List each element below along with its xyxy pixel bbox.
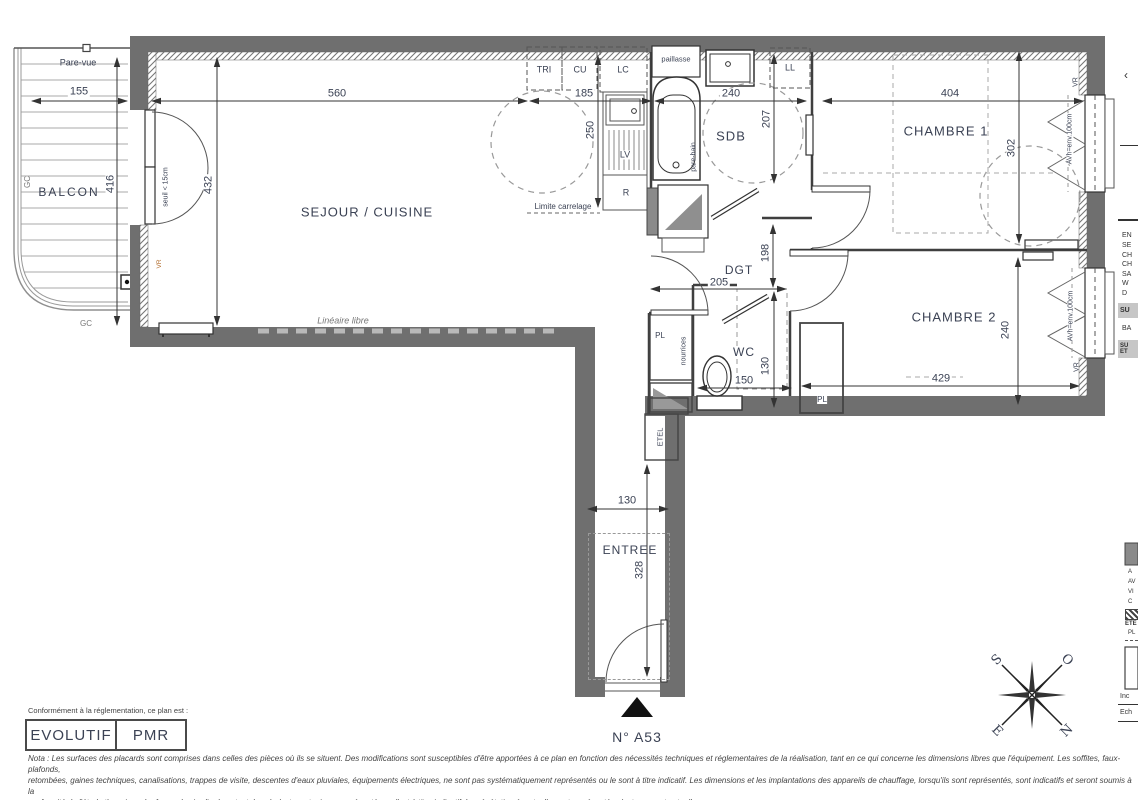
dim-dgt-width: 205 (708, 278, 730, 289)
compliance-badges: EVOLUTIF PMR (25, 719, 187, 751)
legend-key-row-3: VI (1128, 589, 1134, 595)
balcony-french-doors (145, 110, 208, 224)
room-label-balcon: BALCON (38, 186, 99, 198)
lineaire-libre-label: Linéaire libre (317, 317, 369, 326)
dim-ch1-width: 404 (939, 89, 961, 100)
nota-line-1: Nota : Les surfaces des placards sont co… (28, 753, 1133, 775)
legend-row-sejour: SE (1122, 242, 1131, 249)
room-label-chambre2: CHAMBRE 2 (912, 311, 997, 324)
pl-left-label: PL (655, 332, 665, 340)
legend-band2-line2: ET (1120, 349, 1138, 355)
avh-ch2-label: AVh=env.100cm (1068, 291, 1075, 342)
avh-ch1-label: AVh=env.100cm (1067, 114, 1074, 165)
unit-number: N° A53 (612, 730, 662, 744)
legend-row-sdb: SA (1122, 271, 1131, 278)
dim-sejour-height: 432 (204, 174, 215, 196)
badge-evolutif: EVOLUTIF (25, 719, 117, 751)
legend-dashed-sample (1125, 640, 1138, 641)
legend-surface-etel-band: SU ET (1118, 340, 1138, 358)
dim-sejour-width: 560 (326, 89, 348, 100)
limite-carrelage-label: Limite carrelage (533, 203, 594, 211)
vr-ch1-label: VR (1073, 77, 1080, 87)
dim-entree-width: 130 (616, 496, 638, 507)
legend-row-balcon: BA (1122, 325, 1131, 332)
pmr-circles (491, 83, 1080, 246)
seuil-label: seuil < 15cm (163, 167, 170, 207)
compliance-intro: Conformément à la réglementation, ce pla… (28, 706, 188, 715)
nota-line-2: retombées, gaines techniques, canalisati… (28, 775, 1133, 797)
pare-vue-label: Pare-vue (60, 59, 97, 68)
legend-row-entree: EN (1122, 232, 1132, 239)
legend-row-chambre2: CH (1122, 261, 1132, 268)
window-chambre2 (1048, 268, 1114, 358)
legend-echelle: Ech (1120, 709, 1132, 716)
legend-hatch-swatch (1125, 609, 1138, 620)
dim-ch2-width: 429 (930, 374, 952, 385)
legend-row-wc: W (1122, 280, 1129, 287)
dim-wc-width: 150 (733, 376, 755, 387)
window-chambre1 (1048, 95, 1114, 192)
dim-dgt-height: 198 (761, 242, 772, 264)
floor-plan-page: Pare-vue 155 BALCON GC 416 seuil < 15cm … (0, 0, 1138, 800)
sliding-door-wc (723, 296, 768, 322)
dim-balcon-width: 155 (68, 87, 90, 98)
dimension-lines (32, 52, 1083, 676)
dim-cuisine-height: 250 (586, 119, 597, 141)
pl-right-label: PL (817, 396, 827, 404)
dim-ch1-height: 302 (1007, 137, 1018, 159)
legend-echelle-line (1118, 721, 1138, 722)
vr-ch2-label: VR (1074, 362, 1081, 372)
dim-wc-height: 130 (761, 355, 772, 377)
legend-key-pl: PL (1128, 630, 1135, 636)
pare-bain-label: pare-bain (691, 142, 698, 172)
legend-row-chambre1: CH (1122, 252, 1132, 259)
room-label-sdb: SDB (716, 130, 746, 143)
nota-text: Nota : Les surfaces des placards sont co… (28, 753, 1133, 800)
door-chambre2 (790, 250, 848, 311)
room-label-wc: WC (733, 346, 755, 358)
gc-left-label: GC (24, 176, 32, 188)
room-label-sejour: SEJOUR / CUISINE (301, 206, 433, 219)
legend-surface-text: SU (1120, 307, 1138, 314)
dim-balcon-height: 416 (106, 173, 117, 195)
nourrices-label: nourrices (681, 337, 688, 366)
etel-label: ETEL (656, 428, 664, 447)
bathroom-sink (706, 50, 754, 86)
legend-chevron: ‹ (1124, 68, 1128, 82)
paillasse-label: paillasse (661, 55, 690, 63)
compass-icon (998, 661, 1066, 729)
dim-ch2-height: 240 (1001, 319, 1012, 341)
legend-key-row-2: AV (1128, 579, 1136, 585)
technical-duct (647, 185, 708, 252)
unit-lc-label: LC (617, 66, 629, 75)
dim-sdb-width: 240 (720, 89, 742, 100)
gc-bottom-label: GC (80, 320, 92, 328)
legend-divider-2 (1118, 219, 1138, 221)
unit-cu-label: CU (574, 66, 587, 75)
legend-indice-line (1118, 704, 1138, 705)
dim-sdb-height: 207 (762, 108, 773, 130)
unit-r-label: R (623, 189, 630, 198)
pare-vue-post (83, 45, 90, 52)
vr-sejour-label: VR (157, 259, 164, 268)
unit-tri-label: TRI (537, 66, 552, 75)
legend-divider-1 (1120, 145, 1138, 146)
floor-plan-geometry (0, 0, 1138, 800)
dim-cuisine-width: 185 (573, 89, 595, 100)
entree-clearance (588, 533, 670, 680)
legend-key-row-4: C (1128, 599, 1132, 605)
legend-surface-band: SU (1118, 303, 1138, 318)
legend-indice: Inc (1120, 693, 1129, 700)
unit-ll-label: LL (785, 64, 795, 73)
legend-key-row-1: A (1128, 569, 1132, 575)
unit-lv-label: LV (620, 151, 630, 160)
legend-key-etel: ETE (1125, 621, 1137, 627)
room-label-dgt: DGT (725, 264, 753, 276)
badge-pmr: PMR (115, 719, 187, 751)
legend-row-dgt: D (1122, 290, 1127, 297)
sliding-door-sdb (712, 190, 758, 218)
radiator-sdb (806, 115, 813, 155)
door-chambre1 (812, 186, 870, 248)
entrance-arrow-icon (621, 697, 653, 717)
room-label-chambre1: CHAMBRE 1 (904, 125, 989, 138)
